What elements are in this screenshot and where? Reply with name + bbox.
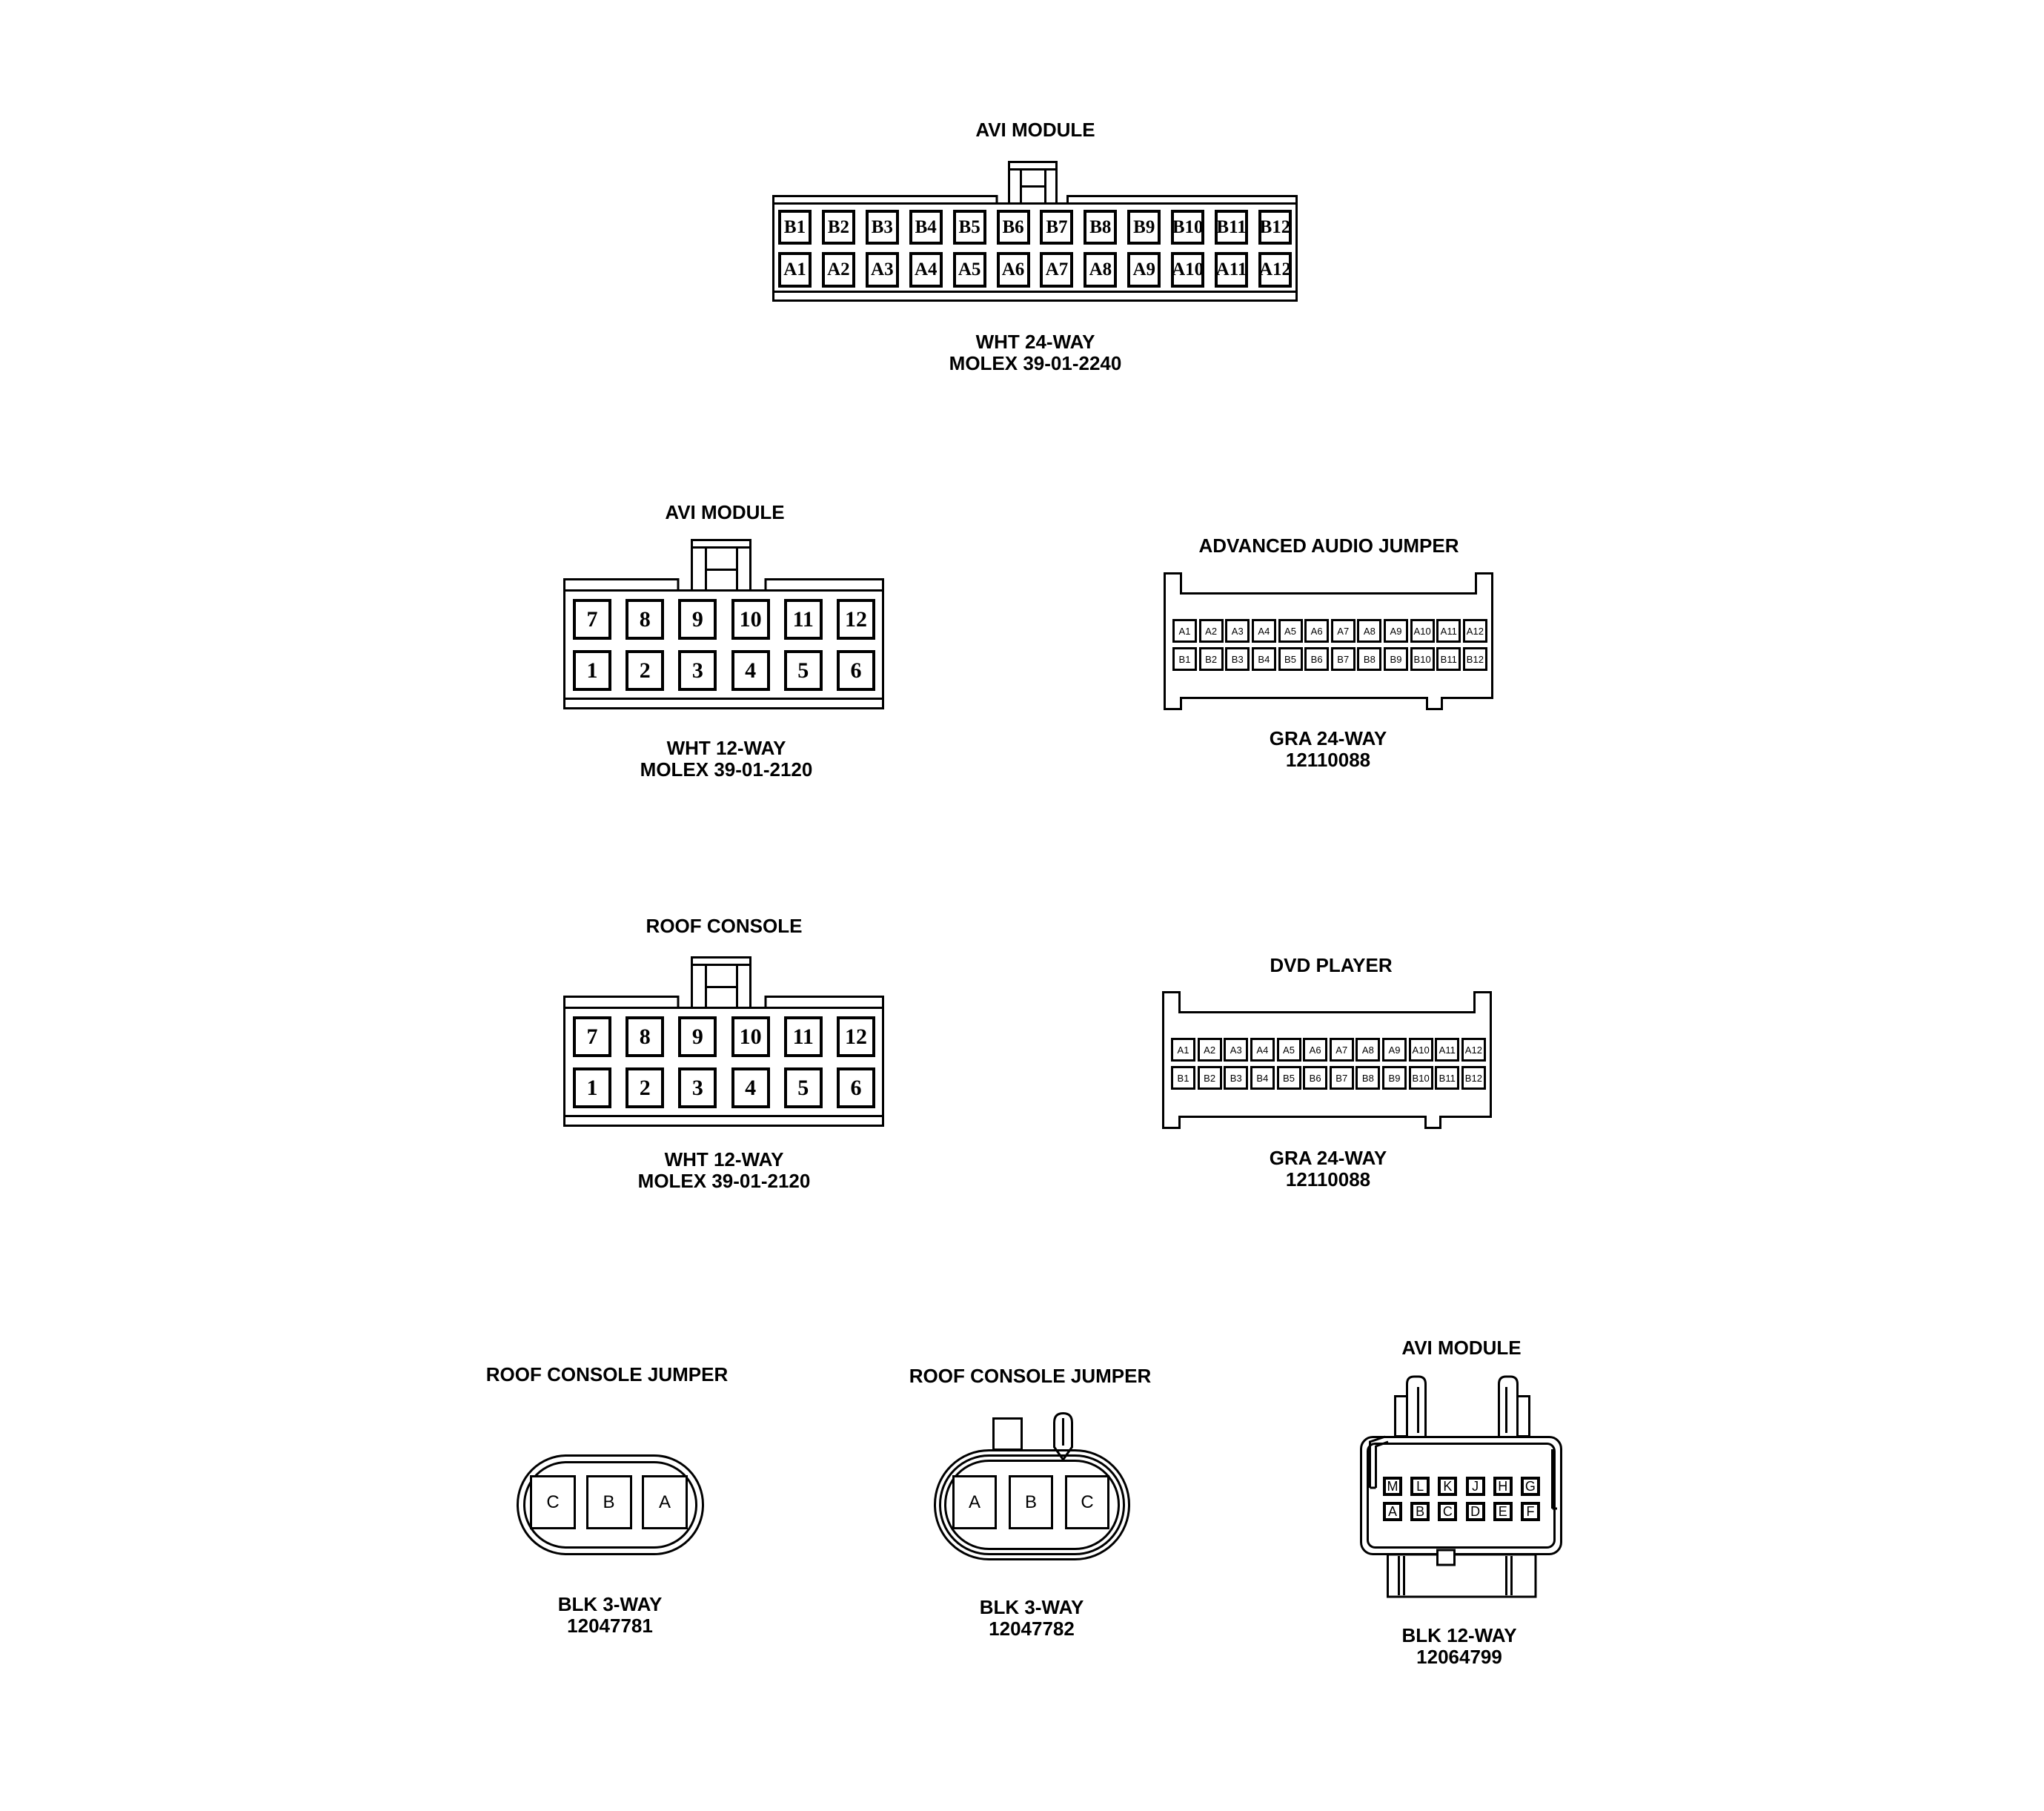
pin-cell: B8 bbox=[1357, 647, 1381, 671]
connector-part-label: BLK 12-WAY 12064799 bbox=[1401, 1625, 1516, 1668]
pin-cell: H bbox=[1493, 1477, 1513, 1496]
pin-cell: A11 bbox=[1436, 619, 1461, 643]
pin-cell: 9 bbox=[678, 1016, 717, 1057]
pin-cell: B bbox=[1410, 1502, 1430, 1521]
pin-row-bottom: 123456 bbox=[573, 650, 875, 691]
pin-cell: B2 bbox=[822, 210, 855, 245]
pin-cell: B5 bbox=[1278, 647, 1303, 671]
lock-tower-left bbox=[1396, 1377, 1426, 1437]
connector-part-number: 12047782 bbox=[980, 1618, 1084, 1640]
pin-cell: A3 bbox=[866, 252, 899, 288]
connector-graphic: 789101112 123456 bbox=[563, 539, 884, 709]
pin-cell: A5 bbox=[1278, 619, 1303, 643]
pin-cell: 11 bbox=[784, 1016, 823, 1057]
pin-cell: B12 bbox=[1463, 647, 1487, 671]
pin-cell: L bbox=[1410, 1477, 1430, 1496]
pin-cell: A2 bbox=[1198, 1038, 1222, 1062]
pin-cell: 12 bbox=[837, 599, 875, 640]
connector-title: ROOF CONSOLE bbox=[646, 915, 803, 937]
connector-title: ROOF CONSOLE JUMPER bbox=[909, 1365, 1151, 1387]
pin-cell: B2 bbox=[1199, 647, 1224, 671]
pin-cell: C bbox=[1065, 1475, 1109, 1529]
pin-cell: B8 bbox=[1084, 210, 1117, 245]
connector-pinout-diagram-page: AVI MODULE bbox=[0, 0, 2044, 1811]
pin-cell: B12 bbox=[1461, 1066, 1486, 1090]
pin-cell: 3 bbox=[678, 1067, 717, 1108]
connector-title: AVI MODULE bbox=[1401, 1337, 1521, 1359]
pin-cell: 5 bbox=[784, 1067, 823, 1108]
pin-cell: A1 bbox=[1172, 619, 1197, 643]
pin-cell: A4 bbox=[909, 252, 943, 288]
pin-cell: J bbox=[1466, 1477, 1485, 1496]
connector-part-number: 12064799 bbox=[1401, 1646, 1516, 1668]
connector-title: AVI MODULE bbox=[975, 119, 1095, 141]
connector-graphic: MLKJHG ABCDEF bbox=[1360, 1375, 1562, 1599]
pin-cell: A10 bbox=[1410, 619, 1435, 643]
pin-cell: B1 bbox=[1172, 647, 1197, 671]
pin-cell: B bbox=[1009, 1475, 1053, 1529]
connector-color-way: GRA 24-WAY bbox=[1270, 728, 1387, 749]
pin-cell: A5 bbox=[1277, 1038, 1301, 1062]
pin-cell: B7 bbox=[1331, 647, 1356, 671]
connector-graphic: B1B2B3B4B5B6B7B8B9B10B11B12 A1A2A3A4A5A6… bbox=[772, 161, 1298, 302]
pin-cell: 7 bbox=[573, 599, 611, 640]
pin-cell: A10 bbox=[1409, 1038, 1433, 1062]
pin-cell: A6 bbox=[1304, 619, 1329, 643]
pin-cell: A3 bbox=[1225, 619, 1250, 643]
pin-cell: A bbox=[1383, 1502, 1402, 1521]
pin-cell: B5 bbox=[1277, 1066, 1301, 1090]
pin-cell: A5 bbox=[953, 252, 986, 288]
connector-color-way: BLK 3-WAY bbox=[980, 1597, 1084, 1618]
pin-cell: B9 bbox=[1384, 647, 1408, 671]
pin-cell: 5 bbox=[784, 650, 823, 691]
pin-cell: 8 bbox=[626, 599, 664, 640]
pin-cell: 4 bbox=[731, 1067, 770, 1108]
connector-part-label: BLK 3-WAY 12047781 bbox=[558, 1594, 663, 1637]
pin-cell: G bbox=[1521, 1477, 1540, 1496]
connector-graphic: A1A2A3A4A5A6A7A8A9A10A11A12 B1B2B3B4B5B6… bbox=[1162, 991, 1492, 1129]
pin-cell: B6 bbox=[1304, 647, 1329, 671]
pin-cell: B11 bbox=[1436, 647, 1461, 671]
connector-color-way: BLK 12-WAY bbox=[1401, 1625, 1516, 1646]
pin-cell: B7 bbox=[1040, 210, 1073, 245]
pin-cell: A9 bbox=[1384, 619, 1408, 643]
pin-cell: A12 bbox=[1461, 1038, 1486, 1062]
pin-cell: B5 bbox=[953, 210, 986, 245]
pin-cell: B4 bbox=[1252, 647, 1276, 671]
latch-tab bbox=[692, 540, 751, 591]
pin-cell: B9 bbox=[1382, 1066, 1407, 1090]
connector-title: DVD PLAYER bbox=[1270, 954, 1392, 976]
pin-cell: B11 bbox=[1435, 1066, 1459, 1090]
pin-cell: B12 bbox=[1258, 210, 1292, 245]
index-tab bbox=[994, 1419, 1022, 1450]
pin-cell: A8 bbox=[1084, 252, 1117, 288]
pin-cell: A6 bbox=[997, 252, 1030, 288]
connector-title: ROOF CONSOLE JUMPER bbox=[486, 1363, 728, 1385]
pin-cell: B4 bbox=[909, 210, 943, 245]
connector-part-number: MOLEX 39-01-2120 bbox=[640, 759, 813, 781]
pin-cell: B4 bbox=[1250, 1066, 1275, 1090]
connector-graphic: CBA bbox=[517, 1454, 704, 1555]
connector-part-label: WHT 12-WAY MOLEX 39-01-2120 bbox=[638, 1149, 811, 1192]
pin-cell: A4 bbox=[1252, 619, 1276, 643]
connector-graphic: A1A2A3A4A5A6A7A8A9A10A11A12 B1B2B3B4B5B6… bbox=[1164, 572, 1493, 710]
connector-part-label: WHT 24-WAY MOLEX 39-01-2240 bbox=[949, 331, 1122, 374]
pin-row: CBA bbox=[530, 1475, 688, 1529]
pin-cell: C bbox=[1438, 1502, 1457, 1521]
pin-cell: B8 bbox=[1356, 1066, 1380, 1090]
pin-cell: A4 bbox=[1250, 1038, 1275, 1062]
pin-cell: 1 bbox=[573, 650, 611, 691]
latch-tab bbox=[692, 958, 751, 1008]
pin-cell: B2 bbox=[1198, 1066, 1222, 1090]
pin-cell: A9 bbox=[1382, 1038, 1407, 1062]
latch-tab bbox=[1009, 162, 1057, 204]
pin-cell: A8 bbox=[1356, 1038, 1380, 1062]
connector-color-way: GRA 24-WAY bbox=[1270, 1148, 1387, 1169]
pin-cell: A1 bbox=[1171, 1038, 1195, 1062]
pin-cell: 10 bbox=[731, 1016, 770, 1057]
pin-cell: A8 bbox=[1357, 619, 1381, 643]
pin-cell: 3 bbox=[678, 650, 717, 691]
pin-cell: C bbox=[530, 1475, 576, 1529]
pin-cell: K bbox=[1438, 1477, 1457, 1496]
pin-cell: A12 bbox=[1463, 619, 1487, 643]
pin-cell: A bbox=[952, 1475, 997, 1529]
pin-cell: D bbox=[1466, 1502, 1485, 1521]
connector-title: AVI MODULE bbox=[665, 501, 784, 523]
pin-cell: 9 bbox=[678, 599, 717, 640]
pin-cell: F bbox=[1521, 1502, 1540, 1521]
pin-cell: 4 bbox=[731, 650, 770, 691]
pin-row-bottom: ABCDEF bbox=[1383, 1502, 1540, 1521]
pin-cell: B6 bbox=[997, 210, 1030, 245]
pin-row-top: MLKJHG bbox=[1383, 1477, 1540, 1496]
pin-cell: A6 bbox=[1303, 1038, 1327, 1062]
connector-base bbox=[1388, 1555, 1536, 1597]
connector-graphic: ABC bbox=[934, 1412, 1130, 1560]
pin-cell: A2 bbox=[1199, 619, 1224, 643]
lock-tower-right bbox=[1499, 1377, 1530, 1437]
connector-title: ADVANCED AUDIO JUMPER bbox=[1198, 534, 1459, 557]
pin-cell: A1 bbox=[778, 252, 812, 288]
connector-part-label: GRA 24-WAY 12110088 bbox=[1270, 1148, 1387, 1191]
connector-part-label: BLK 3-WAY 12047782 bbox=[980, 1597, 1084, 1640]
pin-row-bottom: B1B2B3B4B5B6B7B8B9B10B11B12 bbox=[1171, 1066, 1486, 1090]
cpa-notch bbox=[1438, 1550, 1455, 1565]
pin-cell: B10 bbox=[1171, 210, 1204, 245]
connector-graphic: 789101112 123456 bbox=[563, 956, 884, 1127]
pin-cell: B1 bbox=[1171, 1066, 1195, 1090]
pin-cell: B1 bbox=[778, 210, 812, 245]
pin-cell: A bbox=[642, 1475, 688, 1529]
pin-cell: A11 bbox=[1435, 1038, 1459, 1062]
pin-cell: A9 bbox=[1127, 252, 1161, 288]
pin-cell: B7 bbox=[1330, 1066, 1354, 1090]
connector-color-way: WHT 24-WAY bbox=[949, 331, 1122, 353]
pin-cell: A12 bbox=[1258, 252, 1292, 288]
connector-body bbox=[1361, 1437, 1562, 1565]
pin-cell: M bbox=[1383, 1477, 1402, 1496]
pin-row-top: A1A2A3A4A5A6A7A8A9A10A11A12 bbox=[1171, 1038, 1486, 1062]
pin-cell: 6 bbox=[837, 650, 875, 691]
pin-cell: 7 bbox=[573, 1016, 611, 1057]
pin-row-top: 789101112 bbox=[573, 1016, 875, 1057]
pin-row: ABC bbox=[952, 1475, 1109, 1529]
pin-cell: A10 bbox=[1171, 252, 1204, 288]
pin-cell: A11 bbox=[1215, 252, 1248, 288]
connector-part-number: MOLEX 39-01-2240 bbox=[949, 353, 1122, 374]
pin-cell: B3 bbox=[866, 210, 899, 245]
pin-cell: 8 bbox=[626, 1016, 664, 1057]
connector-part-label: WHT 12-WAY MOLEX 39-01-2120 bbox=[640, 738, 813, 781]
pin-cell: 6 bbox=[837, 1067, 875, 1108]
connector-part-number: 12047781 bbox=[558, 1615, 663, 1637]
pin-cell: 2 bbox=[626, 650, 664, 691]
pin-row-bottom: B1B2B3B4B5B6B7B8B9B10B11B12 bbox=[1172, 647, 1487, 671]
pin-cell: A3 bbox=[1224, 1038, 1248, 1062]
pin-cell: B6 bbox=[1303, 1066, 1327, 1090]
pin-cell: A2 bbox=[822, 252, 855, 288]
pin-cell: B10 bbox=[1409, 1066, 1433, 1090]
connector-part-number: 12110088 bbox=[1270, 749, 1387, 771]
pin-cell: 1 bbox=[573, 1067, 611, 1108]
pin-cell: 10 bbox=[731, 599, 770, 640]
pin-cell: A7 bbox=[1040, 252, 1073, 288]
pin-cell: B3 bbox=[1225, 647, 1250, 671]
pin-cell: 2 bbox=[626, 1067, 664, 1108]
connector-color-way: WHT 12-WAY bbox=[638, 1149, 811, 1171]
pin-cell: B3 bbox=[1224, 1066, 1248, 1090]
pin-row-top: 789101112 bbox=[573, 599, 875, 640]
lock-finger bbox=[1055, 1414, 1072, 1460]
pin-cell: B10 bbox=[1410, 647, 1435, 671]
pin-row-top: B1B2B3B4B5B6B7B8B9B10B11B12 bbox=[778, 210, 1292, 245]
pin-cell: A7 bbox=[1330, 1038, 1354, 1062]
connector-part-number: 12110088 bbox=[1270, 1169, 1387, 1191]
connector-part-label: GRA 24-WAY 12110088 bbox=[1270, 728, 1387, 771]
pin-row-bottom: 123456 bbox=[573, 1067, 875, 1108]
pin-row-bottom: A1A2A3A4A5A6A7A8A9A10A11A12 bbox=[778, 252, 1292, 288]
connector-part-number: MOLEX 39-01-2120 bbox=[638, 1171, 811, 1192]
pin-row-top: A1A2A3A4A5A6A7A8A9A10A11A12 bbox=[1172, 619, 1487, 643]
connector-color-way: WHT 12-WAY bbox=[640, 738, 813, 759]
pin-cell: 12 bbox=[837, 1016, 875, 1057]
pin-cell: 11 bbox=[784, 599, 823, 640]
pin-cell: B11 bbox=[1215, 210, 1248, 245]
connector-color-way: BLK 3-WAY bbox=[558, 1594, 663, 1615]
pin-cell: E bbox=[1493, 1502, 1513, 1521]
pin-cell: A7 bbox=[1331, 619, 1356, 643]
pin-cell: B9 bbox=[1127, 210, 1161, 245]
pin-cell: B bbox=[586, 1475, 632, 1529]
